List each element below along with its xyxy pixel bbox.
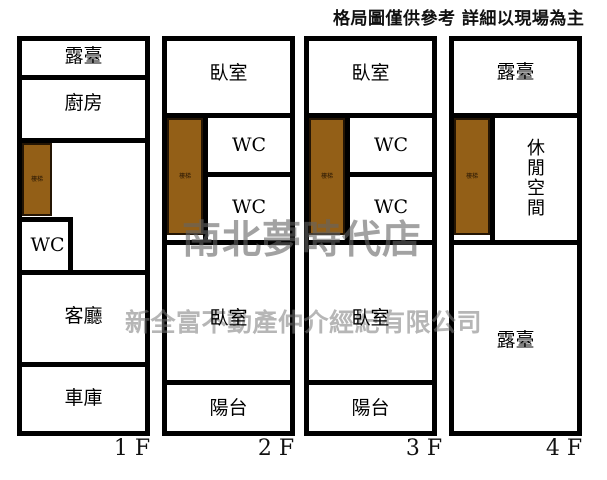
disclaimer-text: 格局圖僅供參考 詳細以現場為主 — [333, 4, 584, 29]
wall-divider — [22, 362, 145, 367]
room-label-balcony: 陽台 — [167, 398, 290, 418]
floor-label-4f: 4 F — [532, 436, 596, 461]
floor-label-1f: 1 F — [100, 436, 164, 461]
wall-divider — [454, 240, 577, 245]
stairs-label: 樓梯 — [321, 174, 333, 180]
stairs-label: 樓梯 — [466, 174, 478, 180]
room-label-leisure: 休閒空間 — [526, 139, 546, 219]
room-label-kitchen: 廚房 — [22, 93, 145, 113]
room-label-bedroom: 臥室 — [309, 63, 432, 83]
room-label-bedroom: 臥室 — [167, 63, 290, 83]
floor-label-3f: 3 F — [392, 436, 456, 461]
wall-divider — [309, 380, 432, 385]
room-label-terrace: 露臺 — [22, 46, 145, 66]
room-label-bedroom: 臥室 — [167, 308, 290, 328]
room-label-bedroom: 臥室 — [309, 308, 432, 328]
stairs-label: 樓梯 — [179, 174, 191, 180]
wall-divider — [208, 172, 290, 177]
stairs-block: 樓梯 — [22, 143, 52, 216]
floor-label-2f: 2 F — [244, 436, 308, 461]
room-label-living: 客廳 — [22, 306, 145, 326]
wall-divider — [350, 172, 432, 177]
wall-divider — [22, 75, 145, 80]
floorplan-canvas: 格局圖僅供參考 詳細以現場為主 樓梯 露臺 廚房 WC 客廳 車庫 樓梯 臥室 … — [0, 0, 607, 480]
stairs-label: 樓梯 — [31, 177, 43, 183]
room-label-wc: WC — [208, 135, 290, 155]
room-label-terrace: 露臺 — [454, 62, 577, 82]
room-label-wc: WC — [208, 197, 290, 217]
wall-divider — [167, 380, 290, 385]
room-label-wc: WC — [350, 197, 432, 217]
room-label-garage: 車庫 — [22, 388, 145, 408]
room-label-balcony: 陽台 — [309, 398, 432, 418]
floor-1-panel: 樓梯 露臺 廚房 WC 客廳 車庫 — [17, 36, 150, 436]
stairs-block: 樓梯 — [454, 118, 490, 235]
wall-divider — [22, 270, 145, 275]
room-label-terrace: 露臺 — [454, 330, 577, 350]
room-leisure-space: 休閒空間 — [495, 118, 577, 240]
floor-4-panel: 樓梯 休閒空間 露臺 露臺 — [449, 36, 582, 436]
room-label-wc: WC — [350, 135, 432, 155]
room-label-wc: WC — [22, 235, 73, 255]
